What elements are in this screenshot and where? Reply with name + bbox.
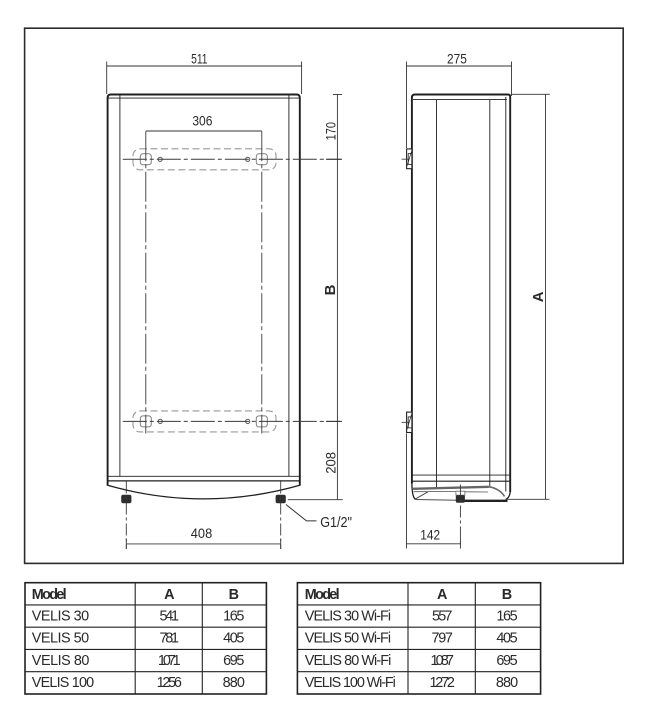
svg-text:1272: 1272: [430, 675, 455, 691]
svg-text:VELIS 30 Wi-Fi: VELIS 30 Wi-Fi: [305, 608, 391, 624]
svg-text:VELIS 50 Wi-Fi: VELIS 50 Wi-Fi: [305, 631, 391, 647]
svg-text:165: 165: [223, 608, 244, 624]
svg-text:VELIS 100: VELIS 100: [32, 675, 94, 691]
svg-text:Model: Model: [305, 587, 340, 603]
svg-text:A: A: [437, 587, 448, 603]
svg-text:142: 142: [420, 526, 440, 542]
svg-text:1071: 1071: [158, 653, 181, 669]
svg-text:405: 405: [496, 631, 517, 647]
svg-text:1256: 1256: [157, 675, 182, 691]
svg-text:797: 797: [432, 631, 453, 647]
svg-text:557: 557: [432, 608, 453, 624]
svg-text:511: 511: [191, 51, 208, 67]
svg-text:405: 405: [223, 631, 244, 647]
svg-text:781: 781: [160, 631, 180, 647]
svg-text:B: B: [322, 284, 339, 295]
svg-text:880: 880: [496, 675, 518, 691]
svg-text:306: 306: [192, 113, 212, 129]
svg-text:695: 695: [223, 653, 244, 669]
svg-text:880: 880: [223, 675, 245, 691]
svg-text:1087: 1087: [430, 653, 454, 669]
svg-text:170: 170: [322, 122, 338, 140]
svg-text:Model: Model: [32, 587, 67, 603]
svg-text:VELIS 30: VELIS 30: [32, 608, 89, 624]
svg-text:B: B: [229, 587, 239, 603]
svg-text:165: 165: [496, 608, 517, 624]
svg-text:VELIS 50: VELIS 50: [32, 631, 89, 647]
svg-text:695: 695: [496, 653, 517, 669]
svg-text:A: A: [530, 291, 547, 302]
svg-text:G1/2": G1/2": [320, 515, 352, 531]
svg-text:B: B: [502, 587, 512, 603]
svg-text:A: A: [164, 587, 175, 603]
svg-text:541: 541: [160, 608, 180, 624]
svg-text:208: 208: [323, 452, 339, 474]
svg-text:VELIS 80 Wi-Fi: VELIS 80 Wi-Fi: [305, 653, 392, 669]
svg-text:VELIS 80: VELIS 80: [32, 653, 90, 669]
svg-text:VELIS 100 Wi-Fi: VELIS 100 Wi-Fi: [305, 675, 396, 691]
svg-text:275: 275: [447, 51, 467, 67]
svg-text:408: 408: [191, 525, 213, 541]
